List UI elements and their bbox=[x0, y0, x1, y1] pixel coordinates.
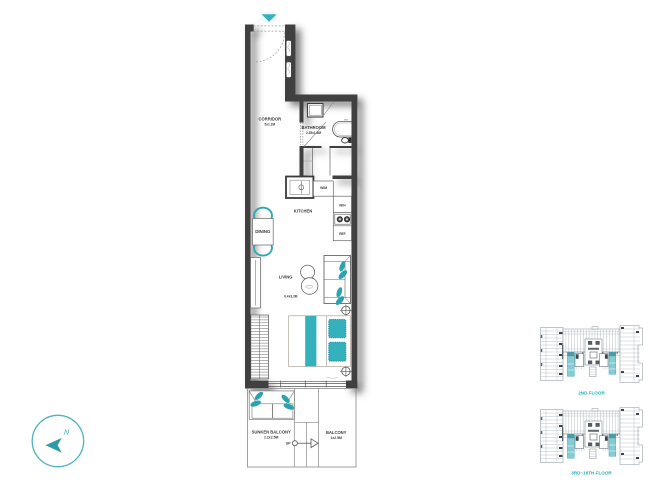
svg-text:2.35x1.6M: 2.35x1.6M bbox=[306, 131, 321, 135]
svg-text:LIVING: LIVING bbox=[279, 274, 293, 279]
svg-text:3RD~16TH FLOOR: 3RD~16TH FLOOR bbox=[571, 470, 612, 475]
svg-text:WH: WH bbox=[344, 119, 348, 121]
svg-text:BALCONY: BALCONY bbox=[326, 430, 347, 435]
svg-text:KITCHEN: KITCHEN bbox=[294, 209, 312, 214]
svg-text:UP: UP bbox=[286, 442, 292, 446]
svg-text:2.2x2.5M: 2.2x2.5M bbox=[264, 436, 278, 440]
svg-text:REF: REF bbox=[339, 232, 345, 236]
svg-text:5x1.2M: 5x1.2M bbox=[264, 122, 275, 126]
svg-text:2ND FLOOR: 2ND FLOOR bbox=[578, 391, 605, 396]
svg-text:DINING: DINING bbox=[255, 229, 271, 234]
svg-text:6.4x3.2M: 6.4x3.2M bbox=[284, 295, 298, 299]
svg-text:BATHROOM: BATHROOM bbox=[301, 125, 326, 130]
svg-text:CORRIDOR: CORRIDOR bbox=[259, 117, 282, 122]
svg-text:W/M: W/M bbox=[320, 186, 327, 190]
svg-text:1x2.5M: 1x2.5M bbox=[330, 436, 342, 440]
svg-text:W/H: W/H bbox=[339, 203, 346, 207]
svg-text:SUNKEN BALCONY: SUNKEN BALCONY bbox=[252, 429, 291, 434]
